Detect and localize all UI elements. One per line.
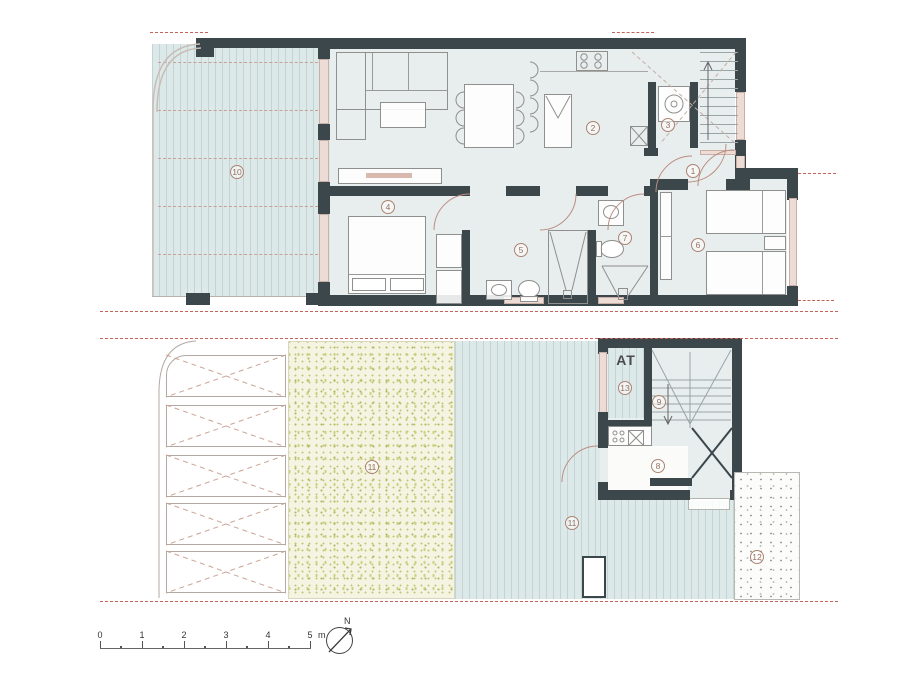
scale-half-dot [120, 646, 122, 648]
dining-table [464, 84, 514, 148]
parking-stall [166, 355, 286, 397]
scale-tick-label: 0 [93, 630, 107, 640]
room-marker-bedroom-1: 4 [381, 200, 395, 214]
gravel-area [734, 472, 800, 600]
entry-step [688, 498, 730, 510]
scale-tick [268, 641, 269, 648]
wardrobe [436, 234, 462, 268]
bbq-planter [582, 556, 606, 598]
scale-tick-label: 2 [177, 630, 191, 640]
scale-tick-label: 1 [135, 630, 149, 640]
room-marker-gravel-patio: 12 [750, 550, 764, 564]
deck-area-south [600, 500, 740, 599]
bed-2 [706, 190, 786, 234]
scale-tick [310, 641, 311, 648]
north-label: N [344, 616, 351, 626]
scale-half-dot [162, 646, 164, 648]
north-circle [326, 627, 353, 654]
scale-tick [142, 641, 143, 648]
at-label: AT [607, 352, 645, 368]
room-marker-kitchen: 2 [586, 121, 600, 135]
parking-stall [166, 503, 286, 545]
room-marker-storage: 13 [618, 381, 632, 395]
parking-stall [166, 405, 286, 447]
room-marker-upper-terrace: 10 [230, 165, 244, 179]
sideboard-handle [366, 173, 412, 178]
deck-area [455, 341, 600, 599]
scale-tick [184, 641, 185, 648]
upper-stairs [700, 52, 738, 148]
fridge [544, 94, 572, 148]
room-marker-bathroom-1: 5 [514, 243, 528, 257]
room-marker-staircase: 9 [652, 395, 666, 409]
scale-half-dot [246, 646, 248, 648]
scale-tick-label: 5 [303, 630, 317, 640]
pillow [390, 278, 424, 291]
scale-unit: m [318, 630, 326, 640]
nightstand [764, 236, 786, 250]
room-marker-laundry: 3 [661, 118, 675, 132]
scale-tick [100, 641, 101, 648]
pillow [352, 278, 386, 291]
parking-stall [166, 455, 286, 497]
kitchen-sink [630, 126, 648, 146]
room-marker-entrance-hall: 1 [686, 164, 700, 178]
lower-sink [628, 430, 644, 446]
scale-half-dot [288, 646, 290, 648]
shower-drain [618, 288, 628, 300]
washing-machine [658, 86, 690, 122]
wardrobe [436, 270, 462, 304]
scale-tick [226, 641, 227, 648]
scale-tick-label: 4 [261, 630, 275, 640]
room-marker-garden: 11 [365, 460, 379, 474]
room-marker-deck-terrace: 11 [565, 516, 579, 530]
room-marker-bedroom-2: 6 [691, 238, 705, 252]
parking-stall [166, 551, 286, 593]
room-marker-bathroom-2: 7 [618, 231, 632, 245]
coffee-table [380, 102, 426, 128]
hob [576, 51, 608, 71]
bed-3 [706, 251, 786, 295]
room-marker-summer-kitchen: 8 [651, 459, 665, 473]
floor-plan-canvas: AT 012345 m N 1234567891011111213 [0, 0, 900, 675]
sofa-chaise [336, 52, 366, 140]
scale-tick-label: 3 [219, 630, 233, 640]
scale-half-dot [204, 646, 206, 648]
